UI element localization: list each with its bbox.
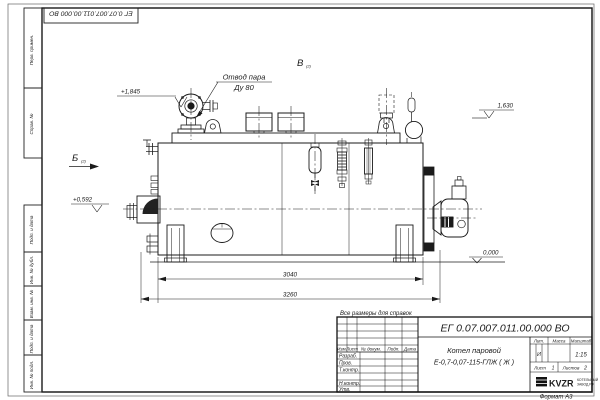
view-marker-v: В bbox=[297, 58, 304, 69]
lit-label: Лит. bbox=[533, 339, 544, 344]
company-logo: KVZR КОТЕЛЬНЫЙ ЗАВОД.РФ bbox=[536, 377, 599, 389]
side-label: Справ. № bbox=[29, 114, 34, 135]
role-prov: Пров. bbox=[339, 361, 352, 367]
col-list: Лист bbox=[345, 347, 358, 352]
product-model: Е-0,7-0,07-115-ГЛЖ ( Ж ) bbox=[434, 360, 514, 367]
title-block-header-row: Изм. Лист № докум. Подп. Дата bbox=[337, 347, 416, 352]
elevation-left: +0,592 bbox=[73, 197, 93, 204]
water-gauge-1 bbox=[309, 143, 321, 191]
water-gauge-2 bbox=[337, 138, 347, 188]
company-tagline-1: КОТЕЛЬНЫЙ bbox=[577, 378, 599, 382]
sheet-label: Лист bbox=[533, 366, 546, 371]
dim-overall-length: 3260 bbox=[283, 292, 298, 299]
callout-line1: Отвод пара bbox=[223, 73, 266, 82]
lit-value: И bbox=[537, 352, 541, 358]
side-label: Взам. инв. № bbox=[29, 290, 34, 318]
scale-label: Масштаб bbox=[571, 339, 592, 344]
format-note: Формат А3 bbox=[540, 395, 573, 400]
title-block-roles: Разраб. Пров. Т.контр. Н.контр. Утв. bbox=[339, 354, 360, 393]
sheets-value: 2 bbox=[583, 366, 587, 372]
boiler-shell bbox=[158, 143, 423, 255]
feed-valve bbox=[127, 196, 160, 223]
callout-line2: Ду 80 bbox=[233, 83, 254, 92]
chimney-stub bbox=[378, 95, 395, 133]
sheets-label: Листов bbox=[562, 366, 580, 371]
burner bbox=[433, 177, 468, 238]
view-marker-b-sub: (2) bbox=[81, 159, 87, 164]
side-label: Подп. и дата bbox=[29, 324, 34, 353]
drawing-sheet: Перв. примен. Справ. № Подп. и дата Инв.… bbox=[0, 0, 600, 400]
side-label: Перв. примен. bbox=[29, 35, 34, 66]
side-label: Подп. и дата bbox=[29, 215, 34, 244]
role-tkontr: Т.контр. bbox=[339, 368, 359, 374]
steam-outlet-valve bbox=[178, 94, 218, 133]
top-platform bbox=[172, 133, 400, 143]
dim-body-length: 3040 bbox=[283, 272, 298, 279]
side-label: Инв. № дубл. bbox=[29, 256, 34, 284]
elevation-right: 1,630 bbox=[498, 103, 514, 110]
role-razrab: Разраб. bbox=[339, 354, 357, 360]
col-sign: Подп. bbox=[387, 347, 399, 352]
mass-label: Масса bbox=[553, 339, 567, 344]
reference-note: Все размеры для справок bbox=[340, 311, 413, 317]
elevation-top-left: +1,845 bbox=[121, 89, 141, 96]
lifting-lug-left bbox=[205, 120, 222, 133]
company-name: KVZR bbox=[549, 379, 574, 389]
support-legs bbox=[165, 225, 416, 262]
scale-value: 1:15 bbox=[575, 353, 587, 359]
view-marker-v-sub: (2) bbox=[306, 64, 312, 69]
view-marker-b: Б bbox=[72, 153, 78, 164]
company-tagline-2: ЗАВОД.РФ bbox=[577, 383, 594, 387]
elevation-ground: 0,000 bbox=[483, 250, 499, 257]
col-date: Дата bbox=[403, 347, 417, 352]
water-gauge-3 bbox=[365, 138, 373, 184]
boiler-view bbox=[123, 88, 505, 262]
front-fittings bbox=[143, 140, 158, 255]
view-b-arrow bbox=[69, 164, 99, 170]
side-label: Инв. № подл. bbox=[29, 361, 34, 390]
vent-pipe bbox=[405, 98, 422, 143]
role-utv: Утв. bbox=[339, 387, 350, 393]
sheet-value: 1 bbox=[552, 366, 555, 372]
drawing-canvas: Перв. примен. Справ. № Подп. и дата Инв.… bbox=[0, 0, 600, 400]
lit-mass-scale: Лит. Масса Масштаб И 1:15 Лист 1 Листов … bbox=[533, 339, 592, 372]
centerlines bbox=[123, 88, 482, 218]
col-doc: № докум. bbox=[361, 347, 381, 352]
elevation-marks bbox=[71, 96, 514, 263]
manhole bbox=[211, 224, 233, 243]
product-name: Котел паровой bbox=[447, 346, 502, 355]
steam-outlet-callout: Отвод пара Ду 80 bbox=[196, 73, 272, 118]
inverted-designation: ЕГ 0.07.007.011.00.000 ВО bbox=[49, 10, 133, 17]
designation: ЕГ 0.07.007.011.00.000 ВО bbox=[440, 323, 569, 335]
